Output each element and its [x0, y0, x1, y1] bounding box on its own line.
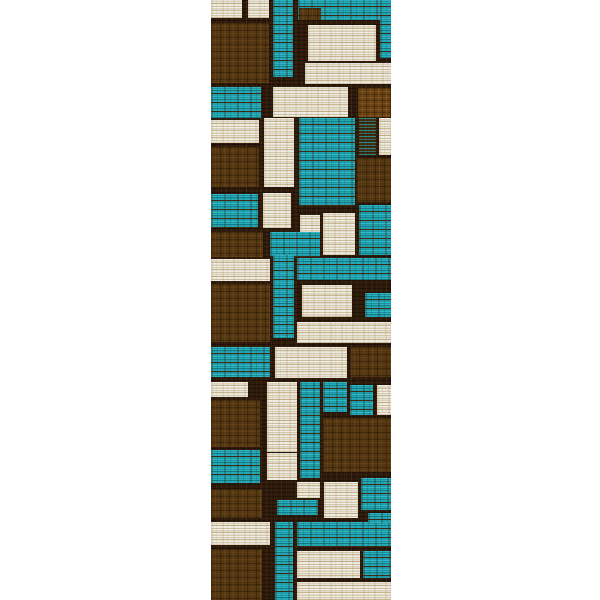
rug-patch-brown_light: [358, 88, 391, 117]
rug-patch-brown: [350, 347, 391, 377]
rug-patch-brown: [211, 284, 270, 342]
rug-patch-teal: [365, 293, 391, 317]
rug-patch-cream: [324, 482, 358, 518]
rug-patch-cream: [211, 382, 248, 397]
rug-patch-teal: [211, 347, 270, 377]
rug-patch-teal: [297, 522, 391, 547]
rug-patch-teal: [211, 194, 258, 228]
rug-patch-cream: [264, 118, 294, 187]
rug-patch-teal: [275, 522, 293, 600]
rug-patch-cream: [297, 482, 320, 498]
rug-patch-cream: [302, 285, 352, 317]
rug-patch-teal: [363, 551, 391, 578]
rug-patch-brown: [357, 158, 391, 202]
rug-patch-brown: [211, 489, 262, 518]
rug-patch-cream: [273, 87, 348, 117]
rug-patch-teal: [350, 385, 373, 415]
rug-runner: [211, 0, 391, 600]
rug-patch-teal: [380, 0, 391, 58]
rug-patch-teal: [211, 450, 260, 483]
rug-patch-brown: [211, 23, 269, 83]
rug-patch-teal: [361, 478, 391, 510]
rug-patch-cream: [248, 0, 269, 18]
rug-patch-cream: [377, 385, 391, 415]
rug-patch-cream: [211, 522, 270, 545]
rug-patch-cream: [297, 582, 391, 600]
rug-patch-brown: [323, 418, 391, 472]
rug-patch-teal: [297, 258, 391, 280]
rug-patch-teal: [368, 513, 391, 523]
rug-patch-brown: [211, 147, 259, 187]
rug-patch-teal: [277, 500, 318, 515]
rug-patch-cream: [211, 259, 270, 281]
rug-patch-cream: [300, 215, 320, 233]
rug-patch-cream: [379, 118, 391, 155]
rug-patch-teal: [273, 0, 293, 77]
rug-patch-brown: [211, 232, 263, 257]
rug-patch-cream: [267, 382, 297, 452]
rug-patch-teal: [299, 118, 355, 206]
product-photo-canvas: [0, 0, 600, 600]
rug-patch-brown: [299, 8, 321, 20]
rug-patch-cream: [308, 25, 376, 61]
rug-patch-cream: [267, 453, 297, 480]
rug-patch-mix: [359, 118, 376, 155]
rug-patch-cream: [275, 347, 347, 378]
rug-patch-teal: [211, 87, 261, 118]
rug-patch-cream: [297, 322, 391, 343]
rug-patch-cream: [297, 551, 360, 578]
rug-patch-cream: [263, 193, 291, 228]
rug-patch-cream: [211, 0, 242, 18]
rug-patch-teal: [273, 255, 294, 338]
rug-patch-cream: [323, 213, 355, 255]
rug-patch-teal: [270, 232, 320, 257]
rug-patch-teal: [323, 382, 347, 412]
rug-patch-cream: [305, 63, 391, 84]
rug-patch-teal: [300, 382, 320, 478]
rug-patch-teal: [359, 205, 391, 255]
page-background: { "scene": { "description": "Product pho…: [0, 0, 600, 600]
rug-patch-brown: [211, 549, 262, 600]
rug-patch-brown: [211, 400, 260, 447]
rug-patch-cream: [211, 120, 259, 143]
